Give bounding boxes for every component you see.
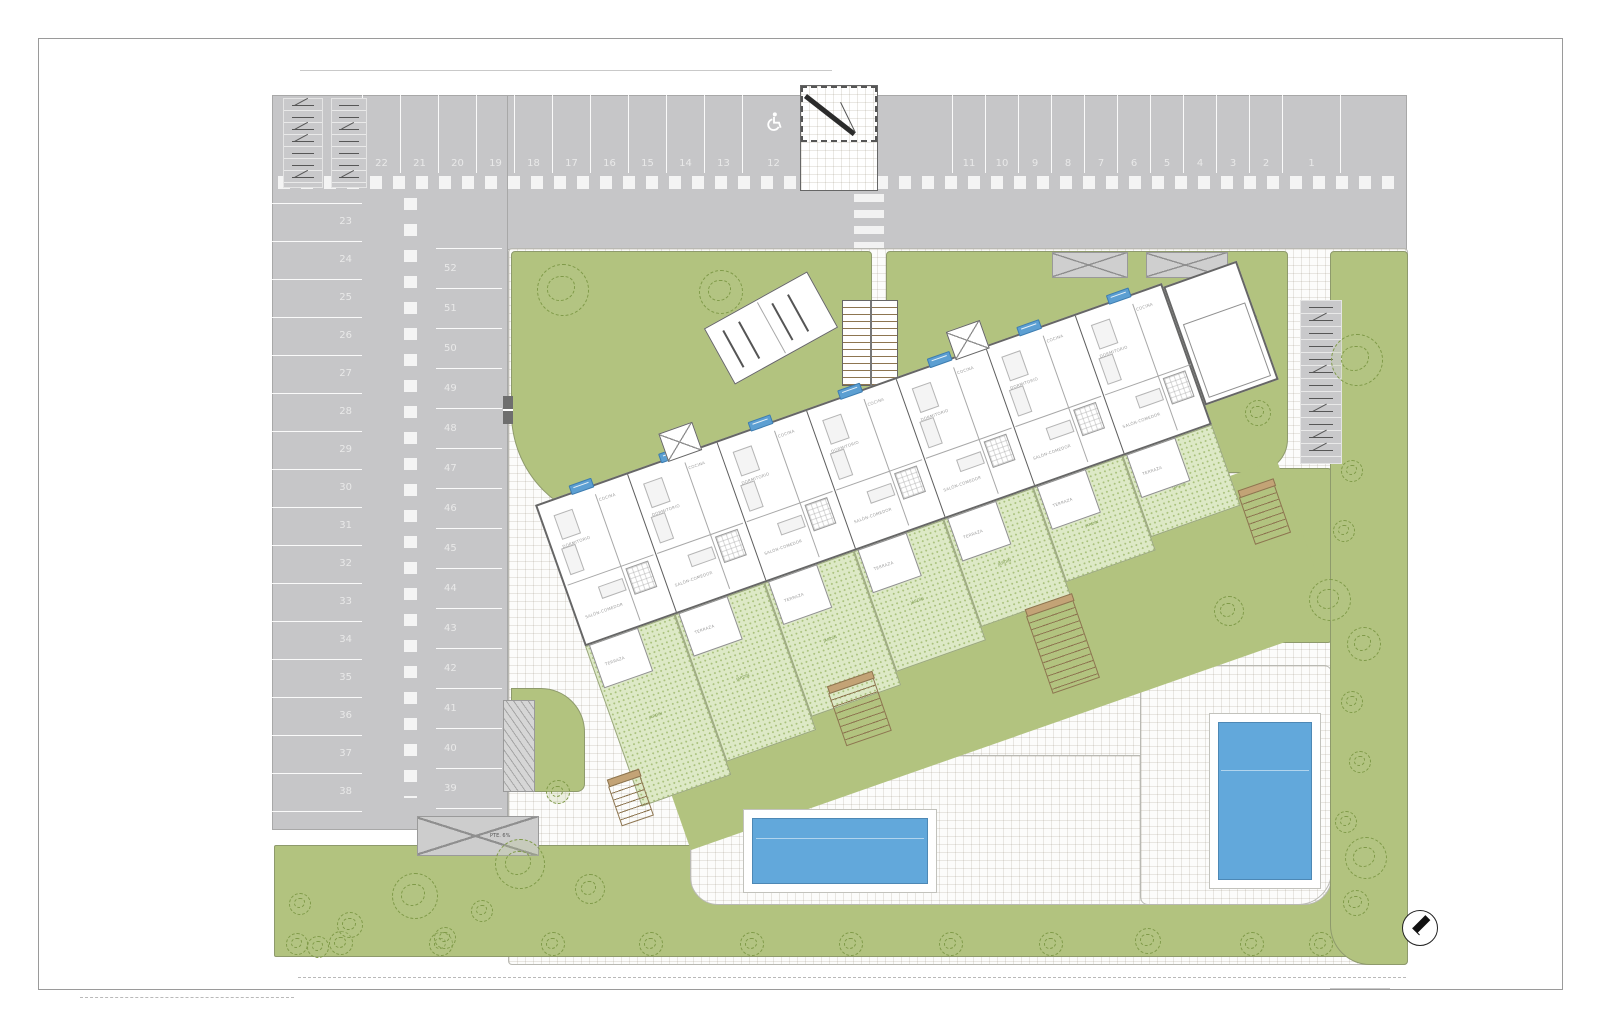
tree-icon — [541, 932, 565, 956]
parking-space-number: 8 — [1052, 158, 1084, 169]
parking-space-number: 19 — [477, 158, 514, 169]
parking-space: 26 — [272, 317, 362, 355]
room-label: SALÓN-COMEDOR — [584, 601, 623, 619]
parking-space-number: 5 — [1151, 158, 1183, 169]
room-label: COCINA — [1135, 301, 1153, 312]
bike-rack-left-1 — [283, 98, 323, 188]
bike-rack-slot — [284, 135, 322, 147]
parking-space: 36 — [272, 697, 362, 735]
parking-space: 23 — [272, 203, 362, 241]
parking-space: 19 — [476, 95, 514, 173]
bike-rack-slot — [1301, 301, 1341, 314]
street-edge-bottom-left — [80, 997, 294, 998]
parking-column-end — [436, 808, 502, 809]
stair-block — [842, 300, 898, 386]
parking-space-number: 24 — [339, 254, 352, 265]
terrace-label: TERRAZA — [963, 528, 984, 540]
parking-space: 6 — [1117, 95, 1150, 173]
bathroom-core — [894, 465, 926, 499]
parking-space: 9 — [1018, 95, 1051, 173]
bike-rack-slot — [1301, 418, 1341, 431]
parking-column-end — [272, 811, 362, 812]
parking-space: 14 — [666, 95, 704, 173]
terrace-label: TERRAZA — [1052, 496, 1073, 508]
parking-space: 50 — [436, 328, 502, 368]
bathroom-core — [804, 497, 836, 531]
garden-label: JARDÍN — [910, 596, 925, 605]
bed-furniture — [643, 477, 671, 508]
parking-space-number: 40 — [444, 743, 457, 754]
parking-space-number: 7 — [1085, 158, 1117, 169]
room-label: COCINA — [598, 492, 616, 503]
parking-space-number: 22 — [363, 158, 400, 169]
parking-space: 49 — [436, 368, 502, 408]
swimming-pool — [752, 818, 928, 884]
parking-space-number: 38 — [339, 786, 352, 797]
bike-icon — [1312, 443, 1330, 457]
bike-icon — [295, 170, 312, 183]
garden-label: JARDÍN — [1084, 519, 1099, 528]
bike-rack-slot — [332, 99, 366, 111]
parking-space-number: 14 — [667, 158, 704, 169]
bike-rack-slot — [284, 111, 322, 123]
parking-space: 21 — [400, 95, 438, 173]
bike-rack-slot — [332, 147, 366, 159]
tree-icon — [537, 264, 589, 316]
swimming-pool — [1218, 722, 1312, 880]
bathroom-core — [984, 434, 1016, 468]
street-edge-top — [300, 70, 832, 71]
room-label: SALÓN-COMEDOR — [764, 538, 803, 556]
tree-icon — [1347, 627, 1381, 661]
parking-space: 51 — [436, 288, 502, 328]
parking-space-number: 36 — [339, 710, 352, 721]
bed-furniture — [822, 414, 850, 445]
parking-space-number: 30 — [339, 482, 352, 493]
parking-space-number: 51 — [444, 303, 457, 314]
parking-space-number: 41 — [444, 703, 457, 714]
parking-space: 22 — [362, 95, 400, 173]
parking-space: 17 — [552, 95, 590, 173]
room-label: SALÓN-COMEDOR — [1032, 443, 1071, 461]
parking-space-number: 21 — [401, 158, 438, 169]
parking-space: 39 — [436, 768, 502, 808]
table-furniture — [598, 578, 627, 599]
table-furniture — [777, 515, 806, 536]
parking-space: 41 — [436, 688, 502, 728]
parking-space-number: 45 — [444, 543, 457, 554]
parking-space-number: 46 — [444, 503, 457, 514]
street-edge-bottom-right — [1330, 988, 1390, 989]
bike-rack-left-2 — [331, 98, 367, 188]
parking-space: 5 — [1150, 95, 1183, 173]
terrace-label: TERRAZA — [783, 592, 804, 604]
parking-space: 52 — [436, 248, 502, 288]
bike-rack-slot — [1301, 405, 1341, 418]
bike-icon — [1312, 430, 1330, 444]
parking-space: 3 — [1216, 95, 1249, 173]
bike-rack-slot — [1301, 431, 1341, 444]
parking-space-number: 44 — [444, 583, 457, 594]
room-label: COCINA — [956, 365, 974, 376]
room-label: SALÓN-COMEDOR — [853, 506, 892, 524]
parking-space-number: 49 — [444, 383, 457, 394]
bathroom-core — [715, 529, 747, 563]
bike-icon — [1312, 365, 1330, 379]
tree-icon — [1240, 932, 1264, 956]
bike-rack-slot — [332, 111, 366, 123]
bike-rack-slot — [1301, 379, 1341, 392]
parking-space: 12 — [742, 95, 804, 173]
parking-space: 11 — [952, 95, 985, 173]
parking-space-number: 52 — [444, 263, 457, 274]
parking-space-number: 6 — [1118, 158, 1150, 169]
parking-space: 38 — [272, 773, 362, 811]
bed-furniture — [912, 382, 940, 413]
parking-space: 7 — [1084, 95, 1117, 173]
parking-space: 34 — [272, 621, 362, 659]
tree-icon — [575, 874, 605, 904]
tree-icon — [1135, 928, 1161, 954]
tree-icon — [337, 912, 363, 938]
parking-space-number: 32 — [339, 558, 352, 569]
table-furniture — [687, 546, 716, 567]
street-edge-bottom — [298, 977, 1406, 978]
parking-space-number: 11 — [953, 158, 985, 169]
lane-marking-vertical — [404, 198, 417, 798]
parking-space-number: 35 — [339, 672, 352, 683]
parking-space-number: 13 — [705, 158, 742, 169]
parking-space: 44 — [436, 568, 502, 608]
ramp-vertical — [503, 700, 535, 792]
parking-space: 25 — [272, 279, 362, 317]
parking-space-number: 37 — [339, 748, 352, 759]
terrace-label: TERRAZA — [873, 560, 894, 572]
parking-space: 15 — [628, 95, 666, 173]
parking-space: 45 — [436, 528, 502, 568]
bike-rack-slot — [284, 171, 322, 183]
parking-space-number: 17 — [553, 158, 590, 169]
parking-space: 27 — [272, 355, 362, 393]
table-furniture — [956, 451, 985, 472]
plot-gate — [503, 396, 513, 424]
parking-space-number: 10 — [986, 158, 1018, 169]
parking-space-number: 27 — [339, 368, 352, 379]
entrance-structure — [800, 85, 878, 191]
entrance-dashed-zone — [801, 86, 877, 142]
bike-icon — [295, 122, 312, 135]
tree-icon — [1341, 691, 1363, 713]
parking-space: 32 — [272, 545, 362, 583]
parking-space: 28 — [272, 393, 362, 431]
site-plan: 2221201918171615141312 1110987654321 232… — [0, 0, 1600, 1024]
parking-space: 43 — [436, 608, 502, 648]
parking-space: 33 — [272, 583, 362, 621]
parking-space-number: 15 — [629, 158, 666, 169]
pergola-canopy — [1052, 252, 1128, 278]
bike-rack-slot — [1301, 392, 1341, 405]
parking-space: 18 — [514, 95, 552, 173]
tree-icon — [839, 932, 863, 956]
bike-rack-slot — [284, 159, 322, 171]
bike-rack-slot — [284, 123, 322, 135]
tree-icon — [1341, 460, 1363, 482]
room-label: COCINA — [777, 428, 795, 439]
room-label: SALÓN-COMEDOR — [674, 570, 713, 588]
parking-space: 31 — [272, 507, 362, 545]
garden-label: JARDÍN — [823, 634, 838, 643]
handicap-icon — [764, 111, 784, 131]
tree-icon — [699, 270, 743, 314]
parking-space-number: 50 — [444, 343, 457, 354]
parking-space: 48 — [436, 408, 502, 448]
parking-space-number: 2 — [1250, 158, 1282, 169]
parking-space: 13 — [704, 95, 742, 173]
bike-rack-slot — [1301, 314, 1341, 327]
parking-space: 35 — [272, 659, 362, 697]
parking-space: 10 — [985, 95, 1018, 173]
room-label: COCINA — [688, 460, 706, 471]
bike-rack-slot — [1301, 327, 1341, 340]
table-furniture — [867, 483, 896, 504]
bike-icon — [1312, 313, 1330, 327]
parking-space-number: 23 — [339, 216, 352, 227]
parking-space-number: 48 — [444, 423, 457, 434]
tree-icon — [307, 936, 329, 958]
bike-icon — [341, 170, 356, 182]
crosswalk-vertical — [854, 194, 884, 248]
parking-space-number: 12 — [743, 158, 804, 169]
parking-row-end — [1340, 95, 1341, 173]
parking-space-number: 42 — [444, 663, 457, 674]
parking-space-number: 1 — [1283, 158, 1340, 169]
parking-space-number: 16 — [591, 158, 628, 169]
parking-space: 46 — [436, 488, 502, 528]
parking-space: 2 — [1249, 95, 1282, 173]
garden-label: JARDÍN — [648, 711, 663, 720]
bed-furniture — [733, 445, 761, 476]
bike-rack-slot — [284, 99, 322, 111]
bike-rack-slot — [284, 147, 322, 159]
tree-icon — [1343, 890, 1369, 916]
parking-space-number: 26 — [339, 330, 352, 341]
tree-icon — [639, 932, 663, 956]
bike-icon — [1312, 404, 1330, 418]
parking-space: 30 — [272, 469, 362, 507]
parking-space-number: 4 — [1184, 158, 1216, 169]
parking-space: 8 — [1051, 95, 1084, 173]
parking-space: 24 — [272, 241, 362, 279]
bathroom-core — [625, 560, 657, 594]
parking-space-number: 31 — [339, 520, 352, 531]
parking-space: 20 — [438, 95, 476, 173]
bike-rack-slot — [332, 171, 366, 183]
parking-space: 47 — [436, 448, 502, 488]
tree-icon — [286, 933, 308, 955]
parking-space: 37 — [272, 735, 362, 773]
tree-icon — [1309, 932, 1333, 956]
parking-space-number: 25 — [339, 292, 352, 303]
terrace-label: TERRAZA — [1142, 465, 1163, 477]
tree-icon — [1335, 811, 1357, 833]
parking-space: 1 — [1282, 95, 1340, 173]
bathroom-core — [1163, 370, 1195, 404]
parking-space-number: 47 — [444, 463, 457, 474]
bike-rack-right — [1300, 300, 1342, 464]
parking-space-number: 9 — [1019, 158, 1051, 169]
garden-label: JARDÍN — [735, 672, 750, 681]
parking-space-number: 20 — [439, 158, 476, 169]
room-label: COCINA — [1046, 333, 1064, 344]
tree-icon — [392, 873, 438, 919]
tree-icon — [289, 893, 311, 915]
parking-space-number: 39 — [444, 783, 457, 794]
tree-icon — [471, 900, 493, 922]
parking-space-number: 3 — [1217, 158, 1249, 169]
bike-icon — [295, 98, 312, 111]
tree-icon — [740, 932, 764, 956]
room-label: COCINA — [867, 397, 885, 408]
tree-icon — [546, 780, 570, 804]
bathroom-core — [1073, 402, 1105, 436]
parking-space: 16 — [590, 95, 628, 173]
table-furniture — [1135, 388, 1164, 409]
tree-icon — [939, 932, 963, 956]
parking-space: 4 — [1183, 95, 1216, 173]
terrace-label: TERRAZA — [604, 655, 625, 667]
parking-space-number: 43 — [444, 623, 457, 634]
ramp-label: PTE. 6% — [490, 833, 510, 839]
parking-space-number: 33 — [339, 596, 352, 607]
room-label: SALÓN-COMEDOR — [1122, 411, 1161, 429]
tree-icon — [1331, 334, 1383, 386]
parking-space-number: 18 — [515, 158, 552, 169]
bike-rack-slot — [332, 135, 366, 147]
bike-rack-slot — [332, 159, 366, 171]
tree-icon — [1349, 751, 1371, 773]
bed-furniture — [1001, 350, 1029, 381]
parking-space: 29 — [272, 431, 362, 469]
tree-icon — [434, 927, 456, 949]
bike-icon — [295, 134, 312, 147]
parking-space: 42 — [436, 648, 502, 688]
bike-icon — [341, 122, 356, 134]
terrace-label: TERRAZA — [694, 623, 715, 635]
garden-label: JARDÍN — [997, 557, 1012, 566]
tree-icon — [1345, 837, 1387, 879]
tree-icon — [1039, 932, 1063, 956]
room-label: SALÓN-COMEDOR — [943, 475, 982, 493]
tree-icon — [495, 839, 545, 889]
parking-space: 40 — [436, 728, 502, 768]
parking-space-number: 29 — [339, 444, 352, 455]
parking-space-number: 34 — [339, 634, 352, 645]
north-compass — [1402, 910, 1438, 946]
bed-furniture — [554, 509, 582, 540]
table-furniture — [1046, 419, 1075, 440]
parking-space-number: 28 — [339, 406, 352, 417]
bike-rack-slot — [332, 123, 366, 135]
bed-furniture — [1091, 318, 1119, 349]
